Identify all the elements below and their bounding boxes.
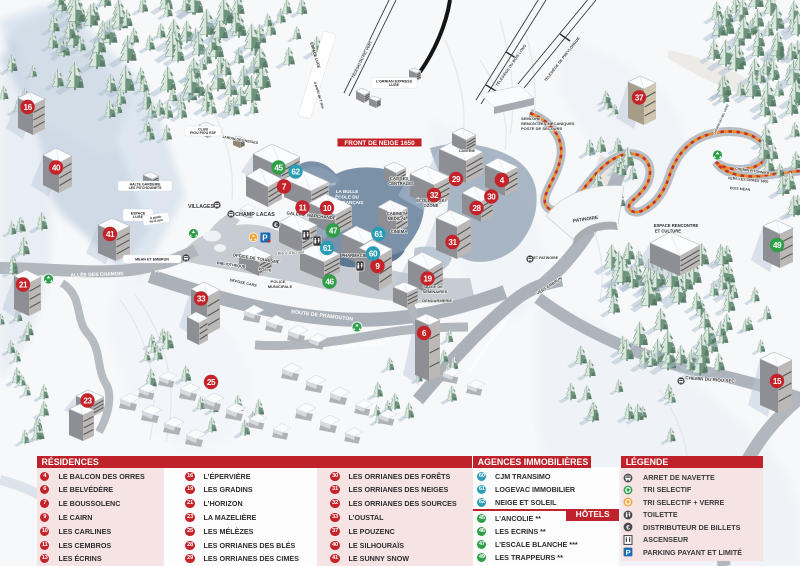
svg-text:47: 47	[329, 226, 338, 235]
svg-text:€: €	[274, 222, 278, 229]
svg-text:TÉLÉSIÈGE DU BOIS LONG: TÉLÉSIÈGE DU BOIS LONG	[494, 43, 527, 87]
svg-text:21: 21	[19, 280, 28, 289]
svg-text:32: 32	[430, 191, 439, 200]
svg-text:Place du festival: Place du festival	[306, 181, 336, 188]
svg-text:29: 29	[452, 175, 461, 184]
svg-text:62: 62	[291, 167, 300, 176]
svg-text:46: 46	[325, 277, 334, 286]
svg-text:30: 30	[487, 192, 496, 201]
svg-text:€: €	[626, 525, 630, 532]
svg-text:10: 10	[323, 204, 332, 213]
svg-text:23: 23	[83, 396, 92, 405]
svg-text:37: 37	[635, 93, 644, 102]
svg-text:ROUTE DE PRAMOUTON: ROUTE DE PRAMOUTON	[291, 309, 354, 323]
svg-text:VERS LES ORRES 1800: VERS LES ORRES 1800	[728, 176, 769, 184]
svg-text:PIOU PIOU ESF: PIOU PIOU ESF	[190, 131, 217, 135]
svg-text:49: 49	[773, 241, 782, 250]
svg-text:33: 33	[197, 294, 206, 303]
svg-text:CHEMIN DU MOUFLON: CHEMIN DU MOUFLON	[330, 341, 386, 352]
svg-text:TÉLÉSIÈGE DE PREYLONGUE: TÉLÉSIÈGE DE PREYLONGUE	[543, 35, 581, 82]
svg-text:15: 15	[773, 377, 782, 386]
svg-text:LUGE: LUGE	[133, 215, 144, 219]
svg-text:61: 61	[374, 230, 383, 239]
svg-text:40: 40	[52, 163, 61, 172]
svg-text:CHEMIN DU GRAND CORBEAU: CHEMIN DU GRAND CORBEAU	[467, 314, 511, 374]
svg-text:GENDARMERIE: GENDARMERIE	[422, 298, 452, 303]
svg-text:16: 16	[23, 103, 32, 112]
svg-text:45: 45	[274, 163, 283, 172]
svg-text:41: 41	[106, 230, 115, 239]
svg-text:FRONT DE NEIGE 1650: FRONT DE NEIGE 1650	[344, 140, 415, 147]
svg-text:28: 28	[472, 204, 481, 213]
svg-text:MÉDICAL: MÉDICAL	[387, 216, 407, 221]
svg-text:ET CULTURE: ET CULTURE	[655, 229, 681, 234]
svg-text:CENTRALES: CENTRALES	[388, 181, 414, 186]
svg-text:CINÉMA: CINÉMA	[391, 229, 408, 234]
svg-text:25: 25	[207, 378, 216, 387]
svg-text:MUNICIPALE: MUNICIPALE	[268, 284, 293, 289]
svg-text:ESPACE RENCONTRE: ESPACE RENCONTRE	[654, 223, 699, 228]
svg-text:CHAMP LACAS: CHAMP LACAS	[235, 212, 275, 218]
svg-text:LA BULLE: LA BULLE	[336, 189, 359, 194]
svg-text:LAVERIE: LAVERIE	[459, 149, 476, 153]
svg-text:ÉCOLE DU: ÉCOLE DU	[335, 193, 359, 200]
svg-text:SKI FRANÇAIS: SKI FRANÇAIS	[331, 200, 364, 205]
svg-text:LES PITCHOUNETS: LES PITCHOUNETS	[129, 186, 163, 190]
svg-text:POSTE DE SECOURS: POSTE DE SECOURS	[521, 126, 562, 131]
svg-text:MEAN ET EMBRUN: MEAN ET EMBRUN	[135, 257, 169, 261]
svg-text:VILLAGES: VILLAGES	[188, 204, 214, 210]
svg-text:PONT SKIEURS: PONT SKIEURS	[154, 266, 183, 274]
svg-text:SÉMINAIRES: SÉMINAIRES	[423, 289, 448, 294]
svg-text:DÉPOSE CARS: DÉPOSE CARS	[229, 277, 258, 288]
svg-text:19: 19	[423, 274, 432, 283]
svg-text:PHARMACIE: PHARMACIE	[341, 253, 367, 258]
svg-text:BOIS MÉAN: BOIS MÉAN	[730, 185, 751, 192]
svg-text:P: P	[262, 233, 268, 242]
svg-text:61: 61	[323, 244, 332, 253]
svg-text:P: P	[625, 548, 630, 557]
svg-text:TÉLÉSKI DU PIC VERT: TÉLÉSKI DU PIC VERT	[350, 39, 373, 79]
svg-text:CHEMIN DU RIOU SEC: CHEMIN DU RIOU SEC	[685, 375, 735, 383]
svg-text:LUGE: LUGE	[389, 83, 400, 87]
svg-text:31: 31	[448, 238, 457, 247]
svg-text:60: 60	[369, 249, 378, 258]
svg-text:OZONE: OZONE	[424, 203, 439, 208]
svg-text:11: 11	[299, 203, 308, 212]
svg-text:ALLÉE DES CHAMOIS: ALLÉE DES CHAMOIS	[70, 269, 124, 279]
svg-text:VERS EMBRUN: VERS EMBRUN	[535, 276, 563, 296]
svg-text:CHEMIN DU MIL VERT: CHEMIN DU MIL VERT	[712, 103, 730, 135]
